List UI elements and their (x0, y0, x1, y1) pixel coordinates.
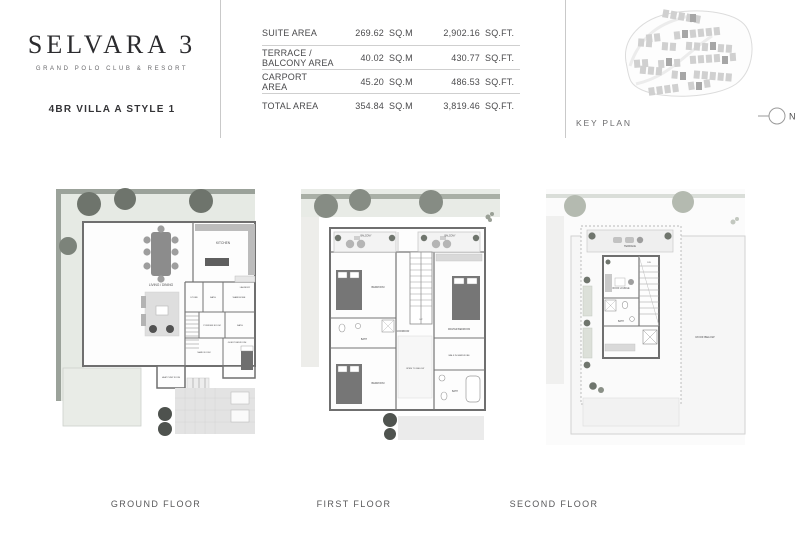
room-label: KITCHEN (216, 241, 231, 245)
area-sqft: 430.77 (418, 53, 480, 63)
room-label: MAID ROOM (198, 351, 211, 354)
room-label: OPEN TO BELOW (406, 368, 425, 370)
tree (189, 189, 213, 213)
room-label: TERRACE (624, 245, 636, 248)
area-sqm-unit: SQ.M (384, 53, 418, 63)
terrace (587, 230, 673, 252)
area-sqft-unit: SQ.FT. (480, 53, 520, 63)
area-sqm: 40.02 (334, 53, 384, 63)
room-label: UP (419, 319, 423, 321)
second-floor-plan: TERRACE ROOF LOUNGE BATH DN ROOF BELOW (543, 186, 748, 448)
key-plan-label: KEY PLAN (576, 118, 632, 128)
room-label: BATH (210, 296, 216, 299)
tree (77, 192, 101, 216)
room-label: ROOF LOUNGE (613, 288, 630, 290)
room-label: BATH (237, 324, 243, 327)
area-sqm: 45.20 (334, 77, 384, 87)
area-label: TOTAL AREA (262, 101, 334, 111)
area-sqm-unit: SQ.M (384, 28, 418, 38)
brochure-page: SELVARA 3 GRAND POLO CLUB & RESORT 4BR V… (0, 0, 800, 550)
room-label: CORRIDOR (397, 331, 410, 333)
room-label: STORE (190, 297, 198, 299)
key-plan-map (590, 4, 760, 104)
room-label: BALCONY (361, 235, 372, 238)
area-sqft: 486.53 (418, 77, 480, 87)
tree (158, 422, 172, 436)
north-arrow-icon: N (758, 105, 798, 127)
area-sqft-unit: SQ.FT. (480, 77, 520, 87)
ground-floor-plan: LIVING / DINING KITCHEN LAUNDRY STORE BA… (53, 186, 258, 448)
area-label: TERRACE / BALCONY AREA (262, 48, 334, 68)
caption-ground-floor: GROUND FLOOR (86, 499, 226, 509)
tree (384, 428, 396, 440)
room-label: BEDROOM (372, 286, 385, 289)
area-table: SUITE AREA 269.62 SQ.M 2,902.16 SQ.FT. T… (262, 21, 520, 117)
room-label: BALCONY (445, 235, 456, 238)
room-label: BATH (361, 338, 367, 341)
room-label: GUEST BEDROOM (228, 342, 247, 344)
tree (349, 189, 371, 211)
table-row: TOTAL AREA 354.84 SQ.M 3,819.46 SQ.FT. (262, 93, 520, 117)
tree (59, 237, 77, 255)
divider-line (565, 0, 566, 138)
table-row: TERRACE / BALCONY AREA 40.02 SQ.M 430.77… (262, 45, 520, 69)
room-label: WARDROBE (233, 296, 246, 299)
table-row: SUITE AREA 269.62 SQ.M 2,902.16 SQ.FT. (262, 21, 520, 45)
area-label: CARPORT AREA (262, 72, 334, 92)
villa-title: 4BR VILLA A STYLE 1 (16, 104, 208, 115)
area-sqm-unit: SQ.M (384, 101, 418, 111)
area-sqft-unit: SQ.FT. (480, 28, 520, 38)
room-label: BEDROOM (372, 382, 385, 385)
living-furniture (141, 292, 179, 336)
outdoor-first (383, 413, 484, 440)
room-label: MASTER BEDROOM (448, 328, 470, 331)
brand-logo: SELVARA 3 GRAND POLO CLUB & RESORT (16, 30, 208, 72)
room-label: HEAT PUMP ROOM (162, 376, 181, 379)
room-label: BATH (452, 390, 458, 393)
area-sqm: 354.84 (334, 101, 384, 111)
area-sqft-unit: SQ.FT. (480, 101, 520, 111)
area-sqft: 3,819.46 (418, 101, 480, 111)
room-label: ROOF BELOW (696, 335, 715, 339)
logo-tagline: GRAND POLO CLUB & RESORT (16, 66, 208, 72)
room-label: LIVING / DINING (149, 283, 174, 287)
stairs (410, 252, 432, 324)
tree (672, 191, 694, 213)
first-floor-plan: BALCONY BALCONY BEDROOM MASTER BEDROOM C… (298, 186, 503, 448)
tree (383, 413, 397, 427)
room-label: POWDER ROOM (203, 325, 220, 327)
table-row: CARPORT AREA 45.20 SQ.M 486.53 SQ.FT. (262, 69, 520, 93)
room-label: DN (647, 262, 651, 264)
tree (564, 195, 586, 217)
logo-title: SELVARA 3 (16, 30, 208, 60)
area-sqm-unit: SQ.M (384, 77, 418, 87)
caption-first-floor: FIRST FLOOR (284, 499, 424, 509)
north-label: N (789, 112, 796, 122)
area-sqft: 2,902.16 (418, 28, 480, 38)
area-sqm: 269.62 (334, 28, 384, 38)
tree (158, 407, 172, 421)
area-label: SUITE AREA (262, 28, 334, 38)
tree (114, 188, 136, 210)
room-label: LAUNDRY (240, 286, 251, 289)
guest-bed (241, 346, 253, 370)
tree (419, 190, 443, 214)
room-label: WALK IN WARDROBE (448, 354, 470, 357)
divider-line (220, 0, 221, 138)
room-label: BATH (618, 320, 624, 323)
caption-second-floor: SECOND FLOOR (484, 499, 624, 509)
tree (314, 194, 338, 218)
